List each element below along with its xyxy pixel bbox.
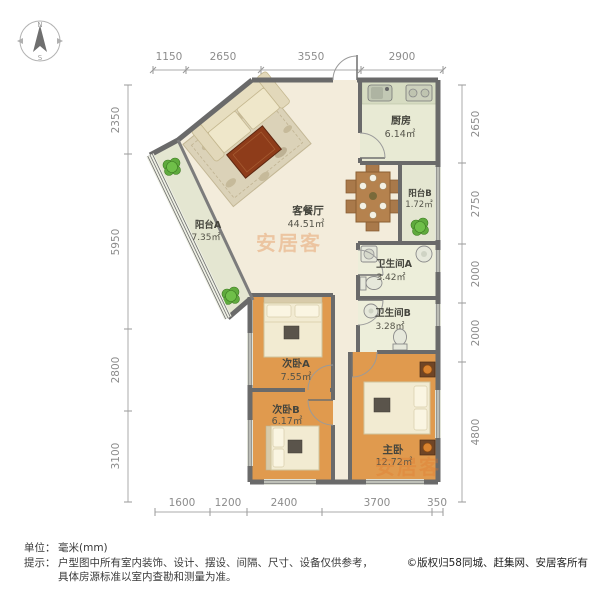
kitchen-counter <box>362 82 436 104</box>
dim-bottom-3700: 3700 <box>364 497 391 509</box>
dimension-top: 1150 2650 3550 2900 <box>150 51 446 74</box>
label-living-name: 客餐厅 <box>291 204 324 217</box>
window-bedroom-b-bottom <box>264 480 316 483</box>
label-balcony-a-name: 阳台A <box>195 219 222 231</box>
dim-top-2650: 2650 <box>210 51 237 63</box>
label-balcony-a-area: 7.35㎡ <box>191 232 220 243</box>
dim-top-3550: 3550 <box>298 51 325 63</box>
footer-unit-value: 毫米(mm) <box>58 541 108 554</box>
dim-left-5950: 5950 <box>110 229 122 256</box>
label-bedroom-b-name: 次卧B <box>272 403 300 416</box>
lamp-icon <box>423 365 432 374</box>
footer-note-line1: 户型图中所有室内装饰、设计、摆设、间隔、尺寸、设备仅供参考， <box>58 556 373 569</box>
label-bath-b-name: 卫生间B <box>375 307 411 319</box>
label-bath-a-area: 3.42㎡ <box>376 272 405 283</box>
plant-balcony-a-top <box>163 158 181 176</box>
label-bedroom-b-area: 6.17㎡ <box>272 416 303 427</box>
dim-left-2350: 2350 <box>110 107 122 134</box>
bedroom-a-bed <box>264 297 322 357</box>
lamp-icon <box>423 443 432 452</box>
dim-top-2900: 2900 <box>389 51 416 63</box>
label-balcony-b-area: 1.72㎡ <box>405 200 433 210</box>
dimension-bottom: 1600 1200 2400 3700 350 <box>155 497 447 516</box>
dim-right-2650: 2650 <box>470 111 482 138</box>
dim-bottom-2400: 2400 <box>271 497 298 509</box>
dim-right-2750: 2750 <box>470 191 482 218</box>
dim-bottom-1600: 1600 <box>169 497 196 509</box>
footer-unit-label: 单位： <box>24 541 56 554</box>
dim-right-2000a: 2000 <box>470 261 482 288</box>
label-bedroom-a-name: 次卧A <box>282 357 310 370</box>
window-master-right <box>436 390 439 438</box>
dim-left-3100: 3100 <box>110 443 122 470</box>
watermark-bottom: 安居客 <box>375 455 441 479</box>
label-bath-a-name: 卫生间A <box>376 258 413 270</box>
floorplan-page: N S 1150 2650 3550 2900 2350 5950 2800 3… <box>0 0 600 600</box>
dim-left-2800: 2800 <box>110 357 122 384</box>
dim-right-2000b: 2000 <box>470 320 482 347</box>
compass-south-label: S <box>38 54 43 62</box>
dim-bottom-350: 350 <box>427 497 447 509</box>
dimension-right: 2650 2750 2000 2000 4800 <box>458 85 482 502</box>
label-bedroom-a-area: 7.55㎡ <box>281 372 312 383</box>
floorplan-canvas: N S 1150 2650 3550 2900 2350 5950 2800 3… <box>0 0 600 600</box>
entry-door <box>333 55 357 80</box>
compass: N S <box>17 21 63 62</box>
footer: 单位： 毫米(mm) 提示： 户型图中所有室内装饰、设计、摆设、间隔、尺寸、设备… <box>24 541 588 583</box>
window-bedroom-b-left <box>248 420 251 466</box>
footer-copyright: ©版权归58同城、赶集网、安居客所有 <box>407 556 588 569</box>
dim-top-1150: 1150 <box>156 51 183 63</box>
dim-bottom-1200: 1200 <box>215 497 242 509</box>
footer-note-label: 提示： <box>24 557 56 569</box>
window-bath-a <box>436 250 439 272</box>
window-master-bottom <box>366 480 424 483</box>
label-kitchen-area: 6.14㎡ <box>385 129 416 140</box>
watermark-center: 安居客 <box>256 231 322 255</box>
label-living-area: 44.51㎡ <box>288 219 325 230</box>
dimension-left: 2350 5950 2800 3100 <box>110 85 132 502</box>
label-kitchen-name: 厨房 <box>391 114 411 127</box>
label-balcony-b-name: 阳台B <box>408 188 431 199</box>
window-bath-b <box>436 304 439 326</box>
window-bedroom-a <box>248 333 251 385</box>
plant-balcony-b <box>411 218 429 236</box>
window-balcony-b <box>436 167 439 240</box>
label-bath-b-area: 3.28㎡ <box>375 321 404 332</box>
bedroom-b-bed <box>266 426 319 470</box>
dim-right-4800: 4800 <box>470 419 482 446</box>
footer-note-line2: 具体房源标准以室内查勘和测量为准。 <box>58 570 237 583</box>
